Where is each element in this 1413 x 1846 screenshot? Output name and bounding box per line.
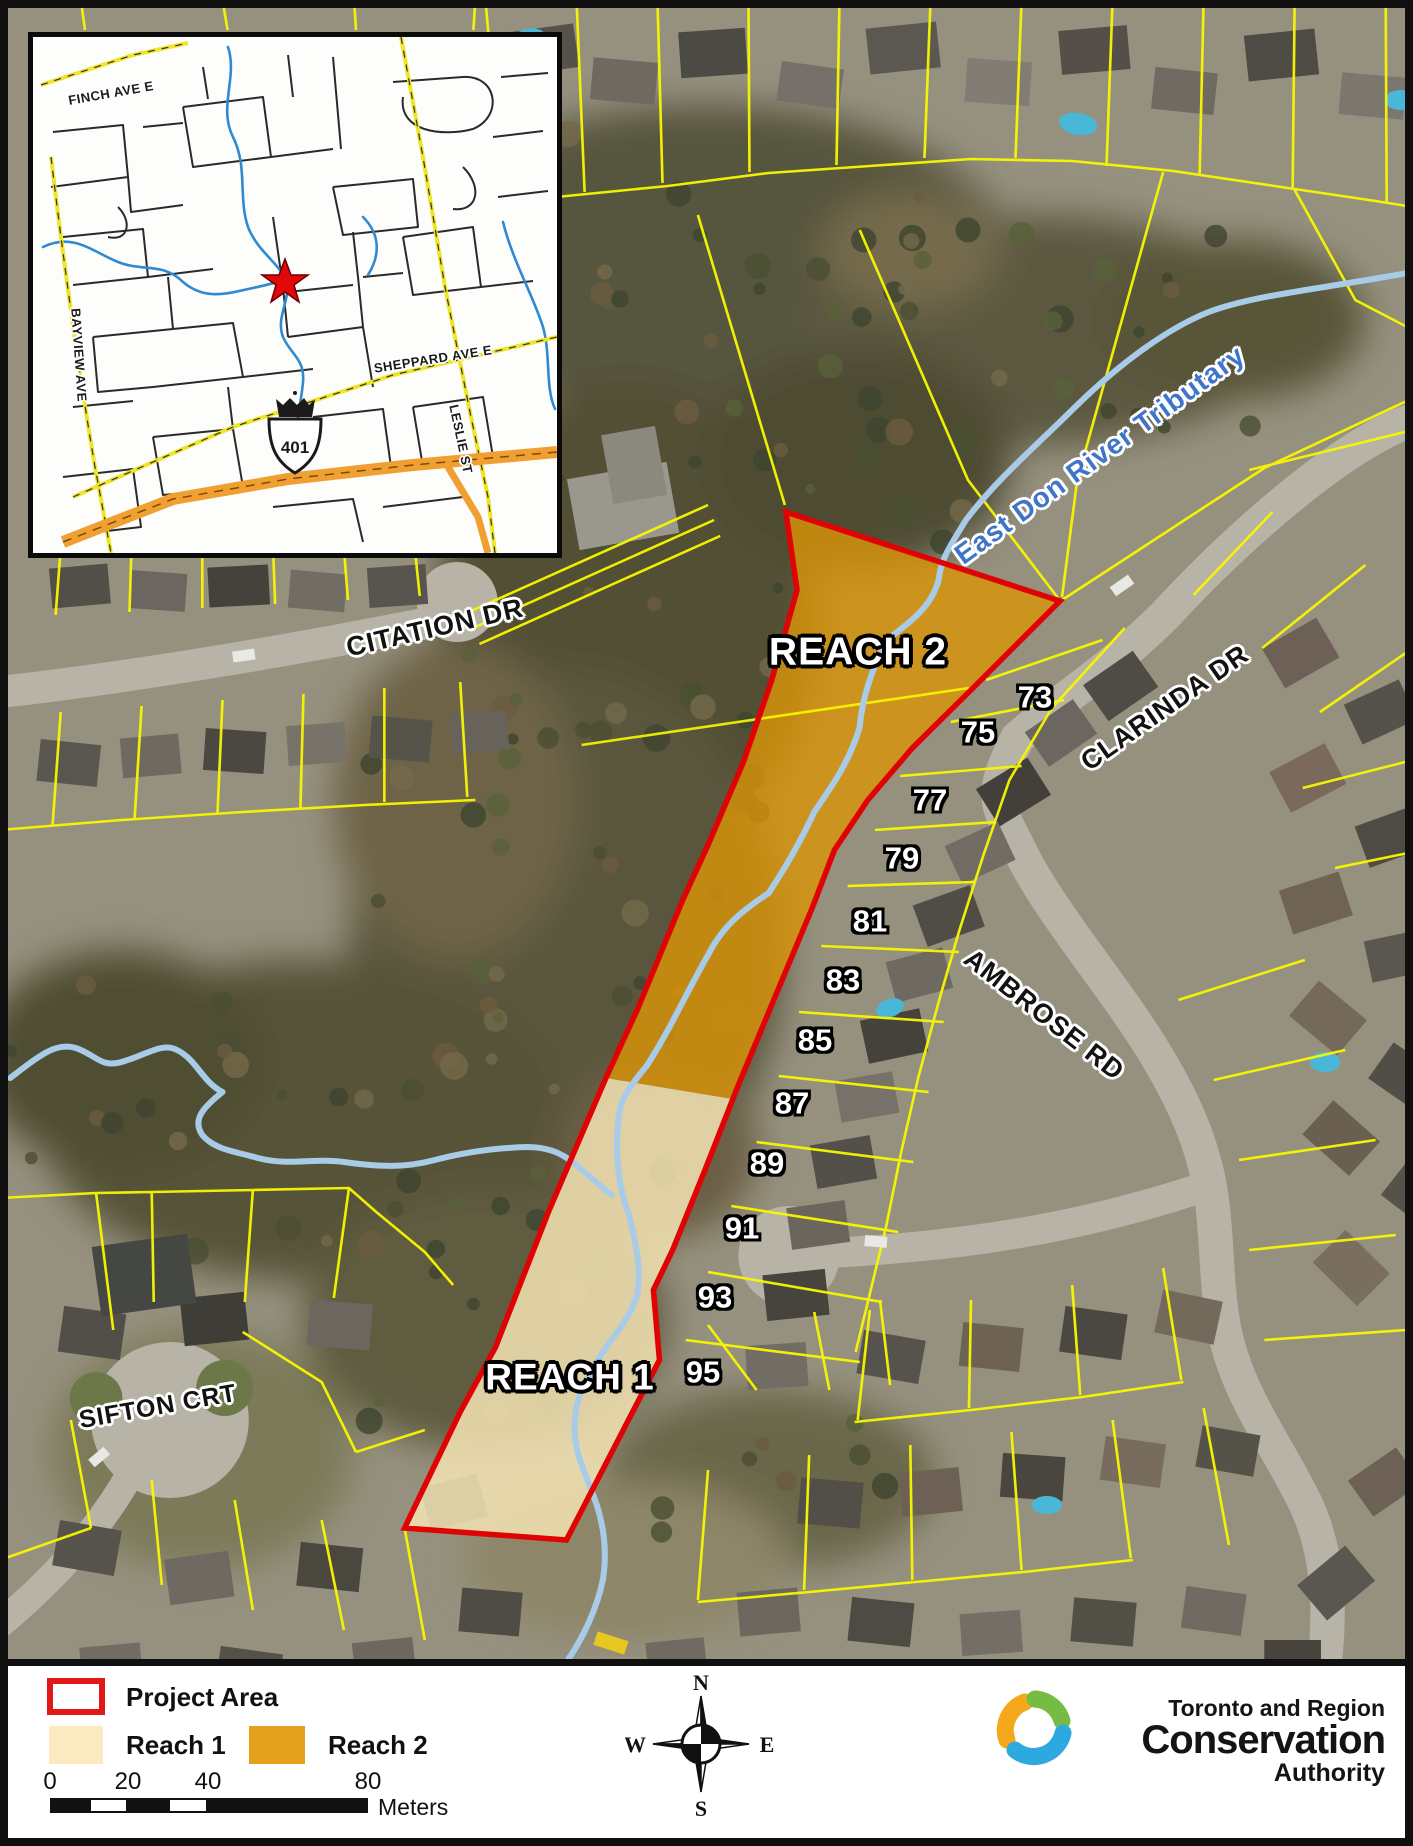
trca-logo-text: Toronto and Region Conservation Authorit… bbox=[1141, 1696, 1385, 1787]
reach2-label: REACH 2 bbox=[769, 633, 947, 672]
legend: Project Area Reach 1 Reach 2 0 20 40 80 … bbox=[0, 1659, 1413, 1846]
house-number: 87 bbox=[775, 1088, 809, 1119]
compass-rose-icon: N S W E bbox=[625, 1668, 777, 1820]
reach1-label: REACH 1 bbox=[485, 1359, 654, 1396]
project-area-label: Project Area bbox=[126, 1682, 278, 1713]
house-number: 75 bbox=[961, 717, 995, 748]
main-map: REACH 2 REACH 1 East Don River Tributary… bbox=[0, 0, 1413, 1659]
scale-tick: 80 bbox=[355, 1768, 382, 1796]
trca-logo-icon bbox=[985, 1680, 1085, 1780]
house-number: 91 bbox=[725, 1213, 759, 1244]
house-number: 95 bbox=[686, 1357, 720, 1388]
svg-text:E: E bbox=[760, 1732, 775, 1757]
svg-text:W: W bbox=[625, 1732, 646, 1757]
scale-tick: 40 bbox=[195, 1768, 222, 1796]
logo-line3: Authority bbox=[1141, 1759, 1385, 1787]
house-number: 85 bbox=[798, 1025, 832, 1056]
reach2-swatch bbox=[249, 1726, 305, 1764]
reach2-legend-label: Reach 2 bbox=[328, 1730, 428, 1761]
scale-unit-label: Meters bbox=[378, 1794, 448, 1821]
scale-tick: 20 bbox=[115, 1768, 142, 1796]
reach1-legend-label: Reach 1 bbox=[126, 1730, 226, 1761]
house-number: 83 bbox=[826, 965, 860, 996]
scale-tick: 0 bbox=[43, 1768, 56, 1796]
house-number: 93 bbox=[698, 1282, 732, 1313]
logo-line2: Conservation bbox=[1141, 1721, 1385, 1759]
svg-text:N: N bbox=[693, 1670, 709, 1695]
svg-text:401: 401 bbox=[281, 438, 309, 457]
house-number: 77 bbox=[913, 785, 947, 816]
inset-location-map: 401 FINCH AVE E BAYVIEW AVE SHEPPARD AVE… bbox=[28, 32, 562, 558]
map-page: REACH 2 REACH 1 East Don River Tributary… bbox=[0, 0, 1413, 1846]
project-area-swatch bbox=[47, 1678, 105, 1715]
reach1-swatch bbox=[49, 1726, 103, 1764]
house-number: 73 bbox=[1018, 682, 1052, 713]
house-number: 89 bbox=[750, 1148, 784, 1179]
svg-text:S: S bbox=[695, 1796, 707, 1820]
inset-streets: 401 bbox=[33, 37, 557, 553]
house-number: 81 bbox=[853, 906, 887, 937]
house-number: 79 bbox=[885, 843, 919, 874]
